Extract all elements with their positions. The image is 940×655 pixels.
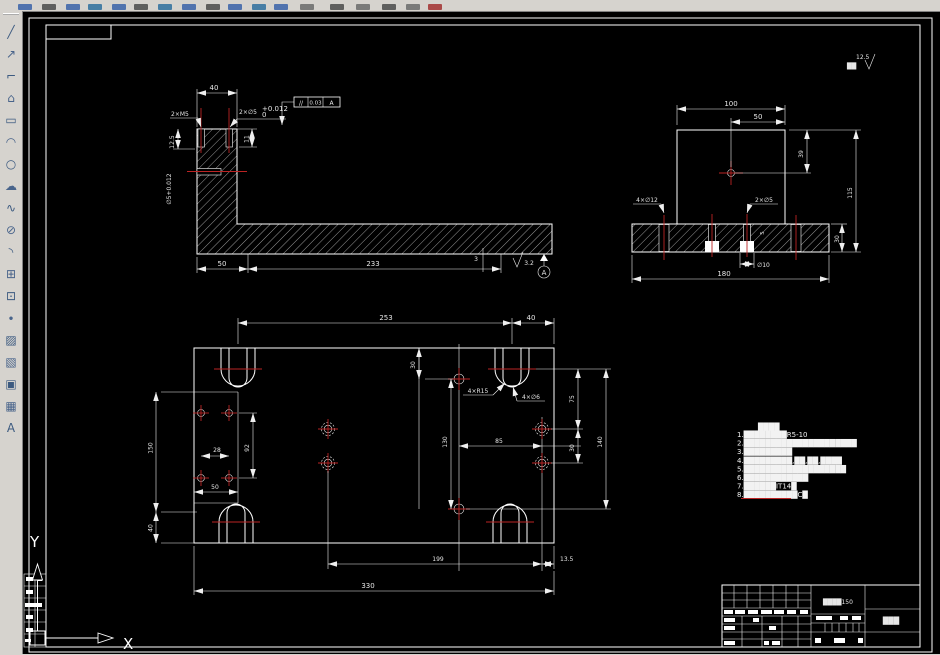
datum-label: A: [542, 269, 547, 277]
dim-92: 92: [244, 444, 251, 452]
dim-253: 253: [379, 314, 392, 322]
hole-callout: 2×∅5: [239, 109, 257, 116]
part-name-cell: ███: [882, 616, 900, 625]
dim-150: 150: [148, 442, 155, 454]
circle-icon[interactable]: ○: [0, 153, 22, 175]
toolbar-button[interactable]: [382, 4, 396, 10]
callout-4xd12: 4×∅12: [636, 197, 658, 204]
toolbar-button[interactable]: [158, 4, 172, 10]
toolbar-button[interactable]: [88, 4, 102, 10]
edge-signature-strip: [24, 574, 46, 647]
toolbar-button[interactable]: [18, 4, 32, 10]
line-icon[interactable]: ╱: [0, 21, 22, 43]
toolbar-button[interactable]: [252, 4, 266, 10]
dim-left-40: 40: [148, 524, 155, 532]
plan-view: 253 40 150 40 28 92 50 4×R15 4×∅6 30 130…: [148, 314, 612, 595]
notes-title: ████: [757, 422, 780, 431]
dim-cbore-d10: ∅10: [757, 262, 770, 269]
hole-tol-lower: 0: [262, 111, 266, 119]
dim-130: 130: [442, 436, 449, 448]
spline-icon[interactable]: ∿: [0, 197, 22, 219]
point-icon[interactable]: ∙: [0, 307, 22, 329]
revision-cloud-icon[interactable]: ☁: [0, 175, 22, 197]
dim-step-3: 3: [474, 256, 478, 263]
dim-50: 50: [754, 113, 763, 121]
thread-callout: 2×M5: [171, 111, 189, 118]
arc-icon[interactable]: ◠: [0, 131, 22, 153]
roughness-rest-label: ██: [846, 62, 857, 70]
toolbar-button[interactable]: [112, 4, 126, 10]
dim-30-thickness: 30: [834, 235, 841, 243]
technical-notes: ████ 1.████████R5-10 2.█████████████████…: [737, 422, 857, 499]
polygon-icon[interactable]: ⌂: [0, 87, 22, 109]
dim-30-top: 30: [410, 361, 417, 369]
ucs-icon: X Y: [29, 533, 133, 653]
note-line-4: 4.█████████,██,██,████: [737, 456, 842, 465]
toolbar-button[interactable]: [274, 4, 288, 10]
dim-75: 75: [569, 395, 576, 403]
drawing: ████150 ███ ██ 12.5 40 2×M5 2×∅5 +0.012 …: [23, 12, 940, 655]
dim-30-right: 30: [569, 444, 576, 452]
note-line-1: 1.████████R5-10: [737, 430, 808, 439]
side-section-view: 100 50 39 115 30 180 ∅10 5 2×∅5 4×∅12: [632, 100, 861, 283]
general-roughness-note: ██ 12.5: [846, 54, 875, 70]
toolbar-button[interactable]: [406, 4, 420, 10]
dim-base-233: 233: [366, 260, 379, 268]
toolbar-button[interactable]: [134, 4, 148, 10]
roughness-3-2: 3.2: [524, 260, 534, 267]
toolbar-button[interactable]: [330, 4, 344, 10]
side-hole-callout: ∅5+0.012: [166, 173, 173, 204]
dim-cbore-depth: 5: [760, 231, 766, 235]
ucs-x-label: X: [123, 635, 133, 653]
note-line-8: 8.██████████C█: [737, 490, 808, 499]
toolbar-grip[interactable]: [3, 13, 19, 20]
note-line-6: 6.████████████: [737, 473, 809, 482]
datum-triangle-icon: [540, 254, 548, 261]
title-block: ████150 ███: [722, 585, 920, 647]
toolbar-button[interactable]: [42, 4, 56, 10]
dim-width-40: 40: [210, 84, 219, 92]
dim-depth-12-5: 12.5: [169, 135, 176, 149]
callout-2xd5: 2×∅5: [755, 197, 773, 204]
model-space-canvas[interactable]: ████150 ███ ██ 12.5 40 2×M5 2×∅5 +0.012 …: [22, 11, 940, 654]
toolbar-button[interactable]: [356, 4, 370, 10]
note-line-5: 5.███████████████████: [737, 464, 847, 473]
callout-4xr15: 4×R15: [468, 388, 489, 395]
corner-hole-group: [193, 405, 237, 486]
draw-toolbar[interactable]: ╱↗⌐⌂▭◠○☁∿⊘◝⊞⊡∙▨▧▣▦A: [0, 11, 23, 654]
insert-block-icon[interactable]: ⊞: [0, 263, 22, 285]
rectangle-icon[interactable]: ▭: [0, 109, 22, 131]
dim-depth-11: 11: [244, 135, 251, 143]
note-line-2: 2.█████████████████████: [737, 439, 857, 448]
polyline-icon[interactable]: ⌐: [0, 65, 22, 87]
toolbar-button[interactable]: [300, 4, 314, 10]
toolbar-button[interactable]: [228, 4, 242, 10]
material-cell: ████150: [822, 598, 853, 606]
ellipse-arc-icon[interactable]: ◝: [0, 241, 22, 263]
fcf-tolerance: 0.03: [309, 101, 322, 107]
toolbar-button[interactable]: [428, 4, 442, 10]
dim-115: 115: [847, 187, 854, 199]
ucs-y-label: Y: [29, 533, 40, 551]
multiline-text-icon[interactable]: A: [0, 417, 22, 439]
dim-top-40: 40: [527, 314, 536, 322]
ucs-y-arrowhead: [33, 564, 43, 580]
dim-100: 100: [724, 100, 737, 108]
note-line-3: 3.█████████: [737, 447, 793, 456]
dim-28: 28: [213, 447, 221, 454]
make-block-icon[interactable]: ⊡: [0, 285, 22, 307]
callout-4xd6: 4×∅6: [522, 394, 540, 401]
toolbar-button[interactable]: [206, 4, 220, 10]
dim-13-5: 13.5: [560, 556, 574, 563]
dim-50-pattern: 50: [211, 484, 219, 491]
front-section-view: 40 2×M5 2×∅5 +0.012 0 // 0.03 A 12.5 11 …: [166, 84, 552, 278]
construction-line-icon[interactable]: ↗: [0, 43, 22, 65]
region-icon[interactable]: ▣: [0, 373, 22, 395]
dim-39: 39: [798, 150, 805, 158]
ellipse-icon[interactable]: ⊘: [0, 219, 22, 241]
toolbar-button[interactable]: [182, 4, 196, 10]
toolbar-button[interactable]: [66, 4, 80, 10]
cad-application-window: { "app": { "canvas_bg": "#000000", "ui_b…: [0, 0, 940, 654]
sheet-border: [24, 18, 932, 652]
dim-199: 199: [432, 556, 444, 563]
dim-330: 330: [361, 582, 374, 590]
table-icon[interactable]: ▦: [0, 395, 22, 417]
dim-85: 85: [495, 438, 503, 445]
hatch-icon[interactable]: ▨: [0, 329, 22, 351]
ucs-x-arrowhead: [98, 633, 113, 643]
roughness-value: 12.5: [856, 54, 870, 61]
dim-140: 140: [597, 436, 604, 448]
note-line-7: 7.██████IT14█: [737, 482, 797, 491]
dim-180: 180: [717, 270, 730, 278]
gradient-icon[interactable]: ▧: [0, 351, 22, 373]
dim-base-50: 50: [218, 260, 227, 268]
